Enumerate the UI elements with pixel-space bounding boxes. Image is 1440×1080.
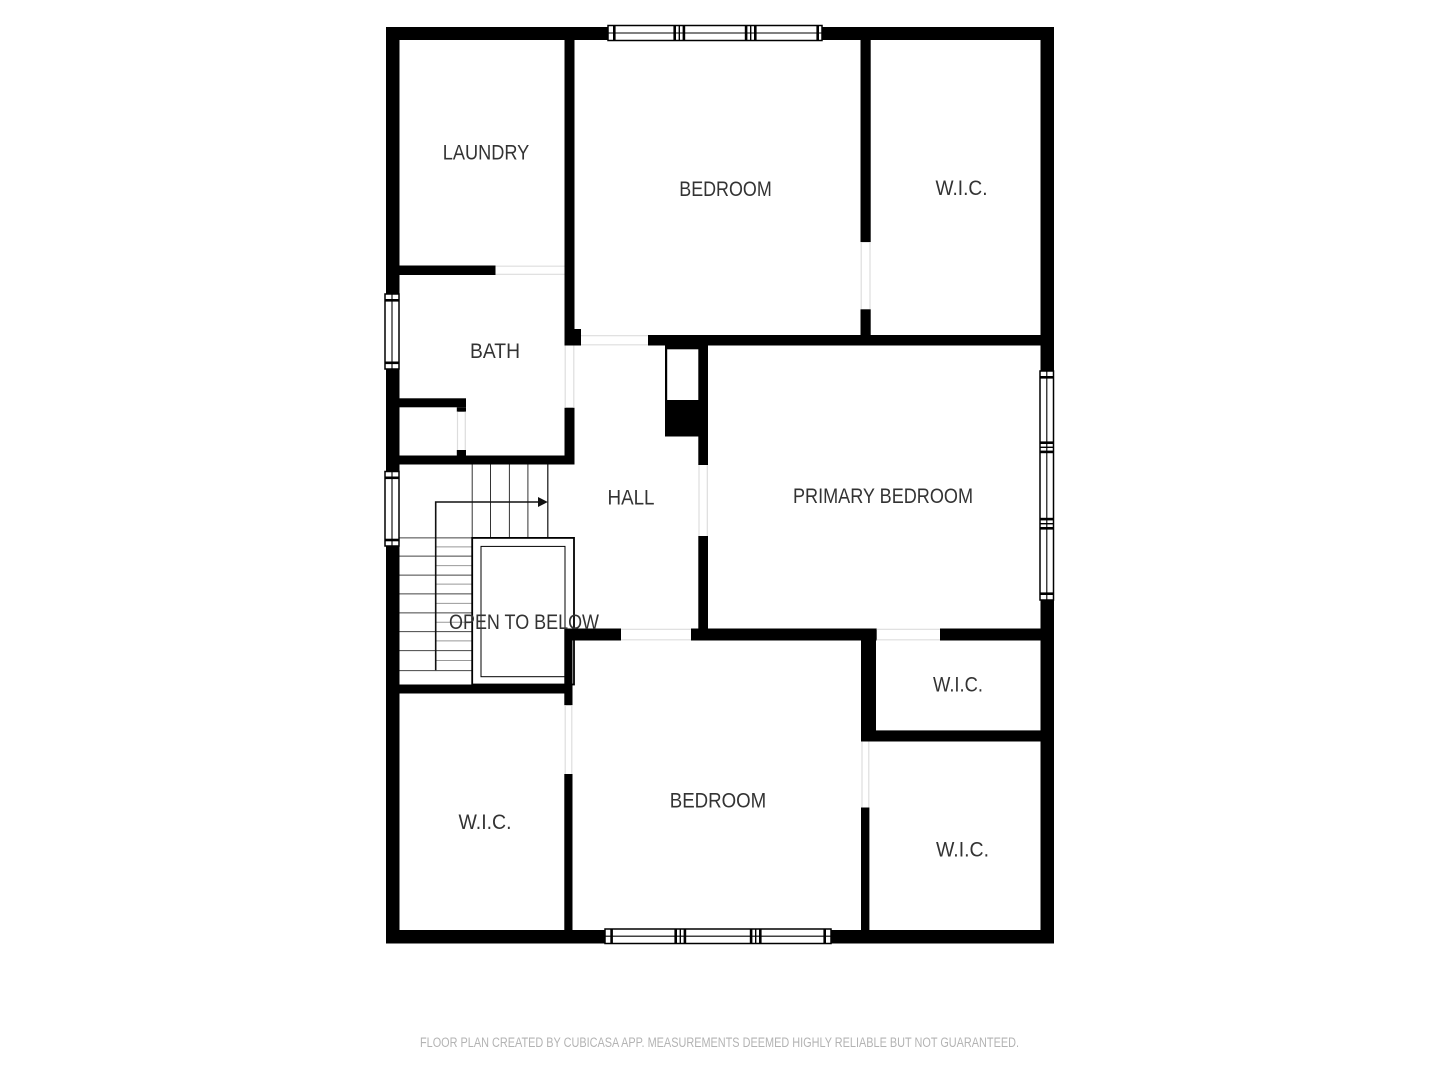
- svg-text:FLOOR PLAN CREATED BY CUBICASA: FLOOR PLAN CREATED BY CUBICASA APP. MEAS…: [420, 1035, 1019, 1050]
- svg-text:BEDROOM: BEDROOM: [679, 178, 772, 201]
- svg-text:LAUNDRY: LAUNDRY: [443, 142, 530, 165]
- svg-text:W.I.C.: W.I.C.: [933, 674, 983, 697]
- svg-text:BEDROOM: BEDROOM: [670, 790, 767, 813]
- svg-text:BATH: BATH: [470, 340, 520, 363]
- svg-text:W.I.C.: W.I.C.: [936, 839, 989, 862]
- svg-text:OPEN TO BELOW: OPEN TO BELOW: [449, 611, 599, 634]
- svg-text:HALL: HALL: [608, 487, 655, 510]
- svg-text:W.I.C.: W.I.C.: [459, 811, 512, 834]
- svg-text:PRIMARY BEDROOM: PRIMARY BEDROOM: [793, 485, 973, 508]
- svg-text:W.I.C.: W.I.C.: [936, 177, 988, 200]
